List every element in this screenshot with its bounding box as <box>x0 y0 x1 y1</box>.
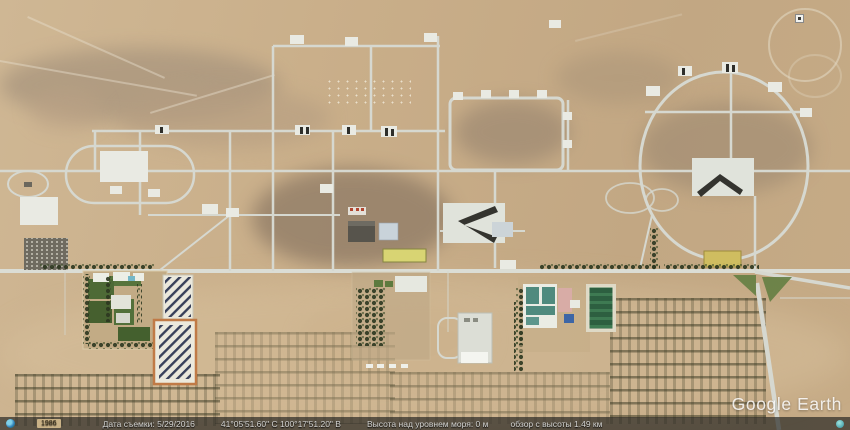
imagery-date: Дата съемки: 5/29/2016 <box>103 419 195 429</box>
solar-array-building <box>163 275 193 319</box>
map-viewport[interactable]: Google Earth 1986 Дата съемки: 5/29/2016… <box>0 0 850 430</box>
solar-farm <box>154 320 196 384</box>
eye-altitude: обзор с высоты 1.49 км <box>510 419 602 429</box>
facility-overlay <box>0 0 850 430</box>
coordinates: 41°05'51.60" С 100°17'51.20" В <box>221 419 341 429</box>
globe-icon <box>6 419 15 428</box>
road-network <box>0 36 850 430</box>
elevation: Высота над уровнем моря: 0 м <box>367 419 489 429</box>
google-earth-watermark: Google Earth <box>732 394 842 415</box>
status-bar: 1986 Дата съемки: 5/29/2016 41°05'51.60"… <box>0 417 850 430</box>
garden-compound <box>352 272 430 368</box>
pool-compound <box>516 277 590 352</box>
chevron-building-east <box>692 158 754 197</box>
timestamp-badge: 1986 <box>37 419 61 428</box>
white-building <box>458 302 523 372</box>
info-dot-icon <box>836 420 844 428</box>
sports-field <box>586 284 616 332</box>
central-buildings <box>24 207 513 270</box>
